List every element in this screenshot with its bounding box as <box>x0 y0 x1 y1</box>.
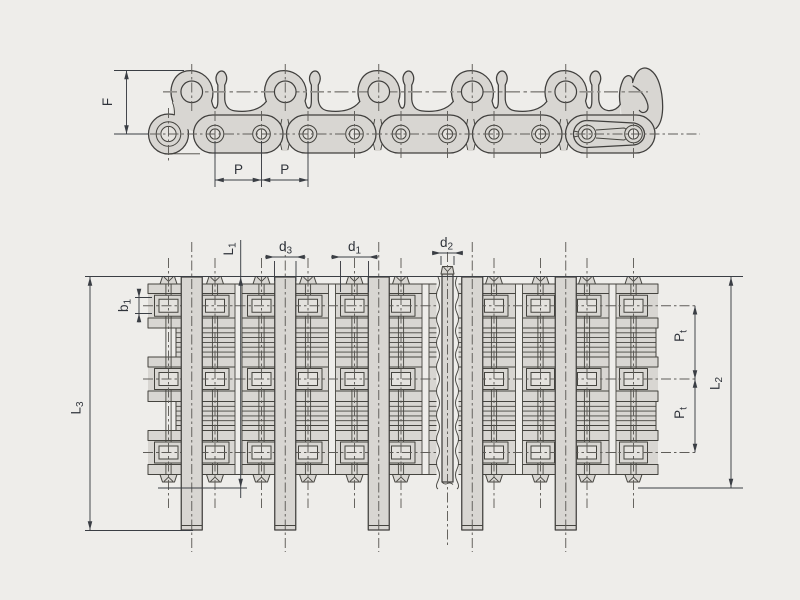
dim-label-d2: d2 <box>440 235 454 253</box>
dim-label-pt-lower: Pt <box>672 407 690 419</box>
dim-label-d1: d1 <box>348 239 362 257</box>
dim-label-p1: P <box>234 162 243 177</box>
dim-label-p2: P <box>280 162 289 177</box>
dim-label-l2: L2 <box>708 377 726 391</box>
dim-label-l1: L1 <box>221 242 239 256</box>
dimension-l2: L2 <box>708 277 734 489</box>
chain-technical-drawing: F P P <box>0 0 800 600</box>
dim-label-f: F <box>100 98 115 106</box>
dim-label-d3: d3 <box>279 239 293 257</box>
dimension-l3: L3 <box>69 277 93 531</box>
dim-label-b1: b1 <box>116 299 134 313</box>
plan-view: L3 L1 d3 d1 <box>69 235 744 552</box>
side-view: F P P <box>100 64 700 187</box>
dim-label-pt-upper: Pt <box>672 330 690 342</box>
dim-label-l3: L3 <box>69 401 87 415</box>
